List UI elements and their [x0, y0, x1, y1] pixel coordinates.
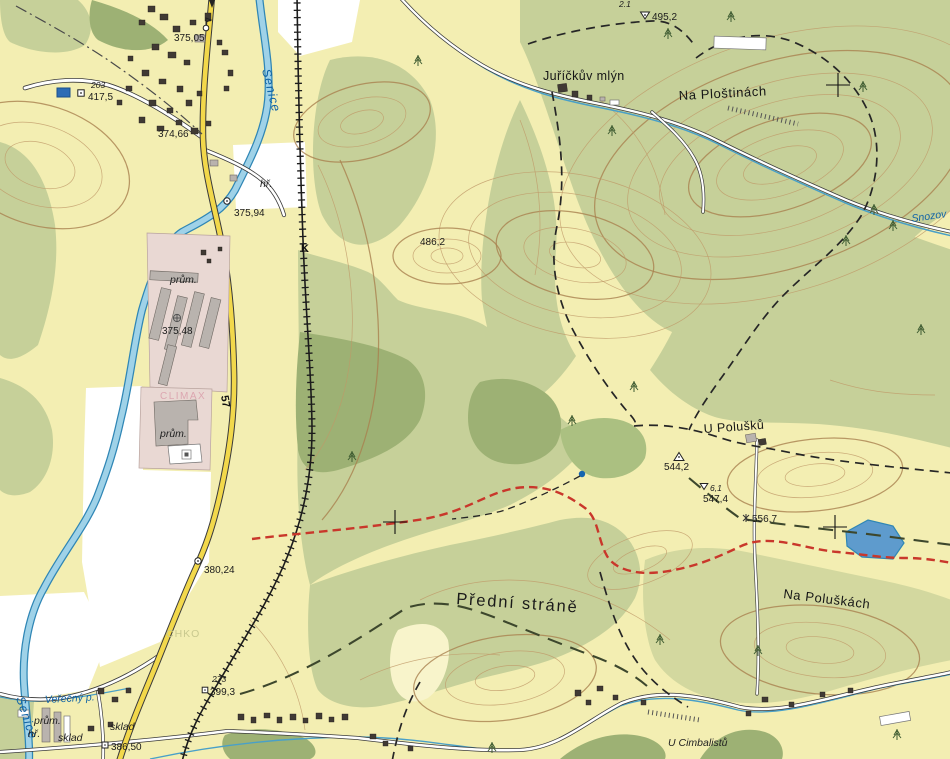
- elevation-556-7: 556,7: [752, 514, 777, 525]
- elevation-203: 203: [90, 80, 105, 90]
- elevation-6-1: 6,1: [710, 483, 722, 493]
- elevation-547-4: 547,4: [703, 494, 728, 505]
- elevation-375-05: 375,05: [174, 33, 205, 44]
- place-label-chko: CHKO: [166, 628, 200, 640]
- landuse-label-sklad-1: sklad: [58, 732, 84, 744]
- place-label-jurickuv-mlyn: Juříčkův mlýn: [543, 69, 625, 83]
- elevation-399-3: 399,3: [210, 687, 235, 698]
- railway-label-k: K: [301, 243, 309, 255]
- landuse-label-prum-2: prům.: [159, 428, 187, 440]
- landuse-label-hriste-1: hř.: [260, 178, 272, 190]
- elevation-375-94: 375,94: [234, 208, 265, 219]
- elevation-273: 273: [211, 674, 226, 684]
- elevation-386-50: 386,50: [111, 742, 142, 753]
- elevation-417-5: 417,5: [88, 92, 113, 103]
- elevation-544-2: 544,2: [664, 462, 689, 473]
- place-label-climax: CLIMAX: [160, 391, 206, 402]
- road-label-57: 57: [218, 394, 232, 408]
- industrial-area-north: [147, 233, 230, 392]
- elevation-374-66: 374,66: [158, 129, 189, 140]
- reservoir-square: [57, 88, 70, 97]
- topographic-map[interactable]: Senice Senice Veřečný p. Snozov Juříčkův…: [0, 0, 950, 759]
- buildings-plostinach-barn: [714, 36, 766, 50]
- landuse-label-prum-1: prům.: [169, 274, 197, 286]
- elevation-495-2: 495,2: [652, 12, 677, 23]
- elevation-2-1: 2.1: [618, 0, 631, 9]
- landuse-label-sklad-2: sklad: [110, 721, 136, 733]
- elevation-380-24: 380,24: [204, 565, 235, 576]
- elevation-375-48: 375,48: [162, 326, 193, 337]
- landuse-label-hriste-2: hř.: [28, 728, 40, 740]
- landuse-label-prum-3: prům.: [33, 715, 61, 727]
- place-label-u-cimbalistu: U Cimbalistů: [668, 737, 728, 749]
- elevation-486-2: 486,2: [420, 237, 445, 248]
